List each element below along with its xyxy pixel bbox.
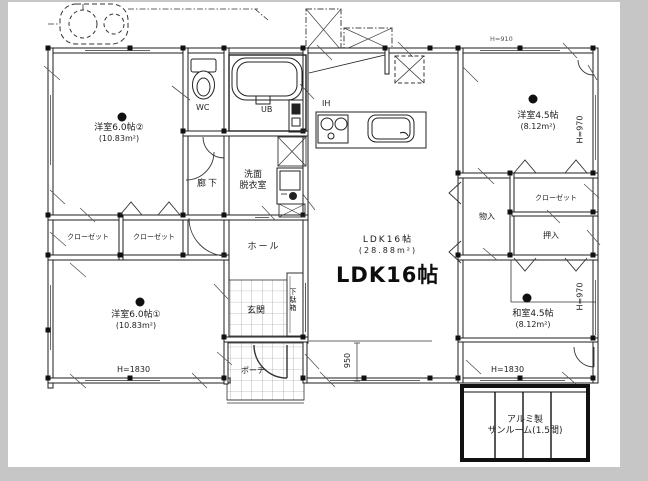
exterior-equipment-symbols bbox=[306, 9, 392, 50]
room-label-western1: 洋室6.0帖①(10.83m²) bbox=[81, 310, 191, 332]
septic-tank-symbol bbox=[48, 4, 268, 44]
refrigerator-space bbox=[395, 56, 424, 83]
floor-plan-screenshot: 洋室6.0帖②(10.83m²) 洋室6.0帖①(10.83m²) 洋室4.5帖… bbox=[0, 0, 648, 481]
dim-h1830-right: H=1830 bbox=[491, 365, 524, 374]
room-label-ldk: LDK16帖(28.88m²) bbox=[333, 235, 443, 257]
label-oshiire: 押入 bbox=[543, 231, 559, 240]
dim-porch-depth: 950 bbox=[343, 353, 352, 368]
dimension-950-lines bbox=[309, 341, 432, 381]
label-closet-a: クローゼット bbox=[58, 233, 118, 241]
label-sunroom: アルミ製サンルーム(1.5間) bbox=[462, 415, 588, 437]
room-label-entrance: 玄関 bbox=[247, 306, 265, 317]
room-label-wc: WC bbox=[196, 103, 210, 112]
room-label-ub: UB bbox=[261, 105, 272, 114]
room-label-porch: ポーチ bbox=[228, 366, 278, 375]
dim-top-right: H=910 bbox=[490, 35, 513, 43]
room-label-hall: ホール bbox=[234, 242, 294, 253]
bathtub-fixture bbox=[229, 55, 306, 132]
dim-h970-lower: H=970 bbox=[576, 283, 585, 311]
room-label-washitsu: 和室4.5帖(8.12m²) bbox=[478, 309, 588, 331]
toilet-fixture bbox=[191, 59, 216, 99]
label-shoe-cabinet: 下駄箱 bbox=[289, 288, 297, 312]
label-storage: 物入 bbox=[479, 212, 495, 221]
washbasin-fixture bbox=[277, 168, 303, 204]
label-closet-b: クローゼット bbox=[124, 233, 184, 241]
room-label-western2: 洋室6.0帖②(10.83m²) bbox=[64, 123, 174, 145]
dim-h970-upper: H=970 bbox=[576, 116, 585, 144]
room-label-washroom: 洗面脱衣室 bbox=[226, 170, 280, 192]
label-closet-right: クローゼット bbox=[526, 194, 586, 202]
label-ih-stove: IH bbox=[322, 99, 330, 108]
dim-h1830-left: H=1830 bbox=[117, 365, 150, 374]
room-label-ldk-big: LDK16帖 bbox=[336, 259, 439, 289]
room-label-hallway: 廊下 bbox=[197, 179, 219, 190]
